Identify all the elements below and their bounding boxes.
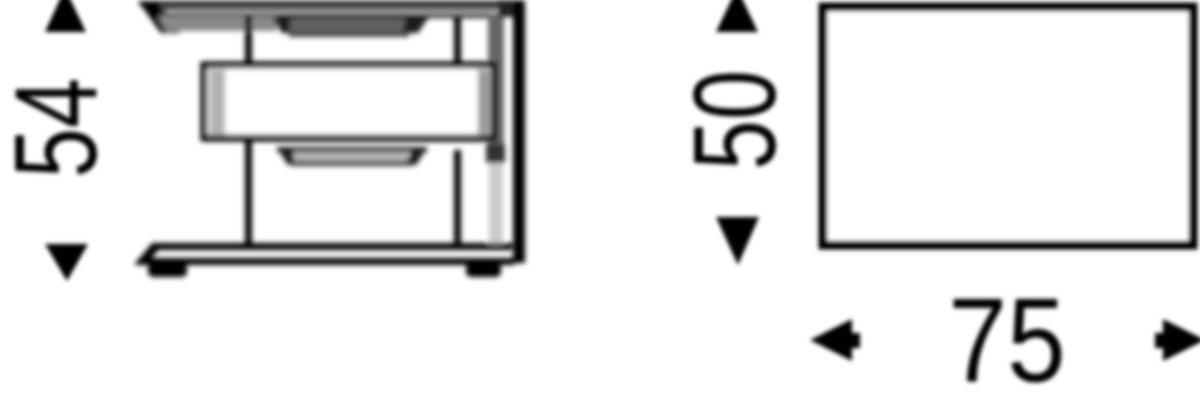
svg-text:75: 75 — [948, 273, 1065, 407]
svg-text:50: 50 — [669, 70, 800, 170]
svg-text:54: 54 — [0, 78, 122, 178]
